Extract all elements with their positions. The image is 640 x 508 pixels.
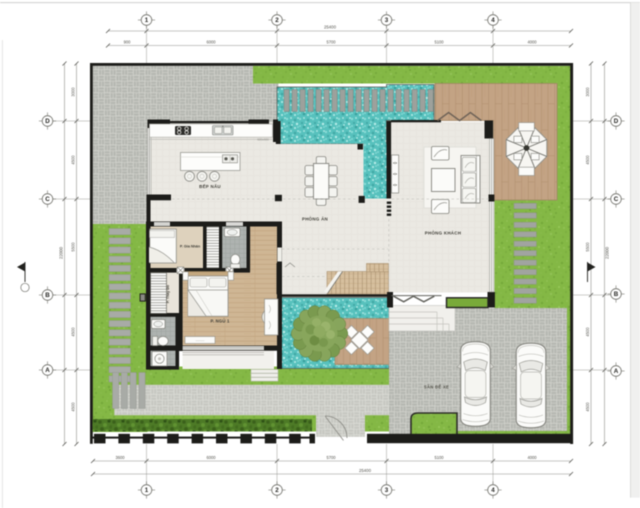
- svg-text:25400: 25400: [324, 25, 337, 30]
- svg-text:P. Thay Đồ: P. Thay Đồ: [166, 284, 170, 303]
- svg-text:1: 1: [145, 17, 149, 24]
- svg-text:6000: 6000: [206, 39, 216, 44]
- svg-text:P. Gia Nhân: P. Gia Nhân: [180, 245, 201, 249]
- svg-text:25400: 25400: [359, 468, 372, 473]
- svg-text:900: 900: [124, 39, 132, 44]
- svg-text:22000: 22000: [605, 246, 610, 259]
- svg-text:600x600: 600x600: [257, 138, 269, 142]
- svg-text:4500: 4500: [585, 402, 590, 412]
- svg-text:3: 3: [385, 487, 389, 494]
- svg-text:PHÒNG KHÁCH: PHÒNG KHÁCH: [425, 231, 461, 236]
- svg-text:5100: 5100: [434, 39, 444, 44]
- svg-text:PHÒNG ĂN: PHÒNG ĂN: [302, 217, 328, 222]
- svg-text:4: 4: [491, 487, 495, 494]
- svg-text:4500: 4500: [71, 327, 76, 337]
- svg-text:3000: 3000: [71, 87, 76, 97]
- svg-text:A: A: [614, 368, 619, 375]
- svg-text:P. NGỦ 1: P. NGỦ 1: [211, 319, 230, 324]
- svg-text:D: D: [614, 118, 619, 125]
- svg-text:6000: 6000: [206, 455, 216, 460]
- svg-text:B: B: [614, 291, 619, 298]
- svg-text:BẾP NẤU: BẾP NẤU: [199, 184, 221, 189]
- svg-text:B: B: [45, 292, 50, 299]
- svg-text:4500: 4500: [585, 327, 590, 337]
- svg-text:22000: 22000: [59, 246, 64, 259]
- svg-text:5500: 5500: [585, 242, 590, 252]
- svg-text:2: 2: [275, 487, 279, 494]
- svg-text:4500: 4500: [585, 155, 590, 165]
- svg-text:2: 2: [275, 17, 279, 24]
- svg-text:3: 3: [385, 17, 389, 24]
- svg-text:C: C: [45, 196, 50, 203]
- svg-text:4000: 4000: [527, 455, 537, 460]
- svg-text:D: D: [45, 118, 50, 125]
- svg-text:3000: 3000: [585, 87, 590, 97]
- svg-text:4000: 4000: [527, 39, 537, 44]
- svg-text:5100: 5100: [434, 455, 444, 460]
- svg-text:C: C: [614, 196, 619, 203]
- svg-text:5500: 5500: [71, 242, 76, 252]
- svg-text:5700: 5700: [326, 39, 336, 44]
- svg-text:~~~~~: ~~~~~: [196, 339, 205, 343]
- svg-text:4500: 4500: [71, 402, 76, 412]
- svg-text:SÂN ĐỂ XE: SÂN ĐỂ XE: [424, 385, 449, 390]
- svg-text:4500: 4500: [71, 155, 76, 165]
- svg-text:4: 4: [491, 17, 495, 24]
- svg-text:3600: 3600: [115, 455, 125, 460]
- svg-text:A: A: [45, 367, 50, 374]
- svg-text:5700: 5700: [326, 455, 336, 460]
- svg-text:1: 1: [145, 487, 149, 494]
